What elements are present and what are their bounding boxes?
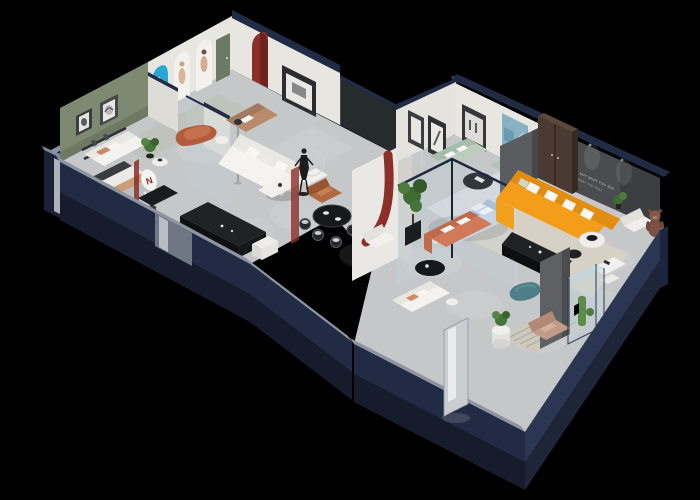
right-end-cap [660, 226, 668, 288]
black-dining-table [313, 205, 351, 227]
side-table [446, 299, 458, 306]
red-arch-niche [252, 32, 268, 88]
black-oval-coffee-table [415, 260, 445, 276]
white-round-coffee-table [579, 232, 605, 248]
small-side-table [216, 136, 229, 144]
cactus [578, 296, 586, 326]
isometric-scene: 8 8 8 [0, 0, 700, 500]
inner-wall-sliver [54, 158, 60, 214]
green-door [216, 33, 230, 82]
white-arch-niche-2 [196, 39, 212, 92]
red-wall-panel [291, 166, 299, 244]
showroom-floorplan-render: 8 8 8 [0, 0, 700, 500]
plant-pedestal [492, 311, 510, 349]
round-side-table [152, 158, 168, 167]
